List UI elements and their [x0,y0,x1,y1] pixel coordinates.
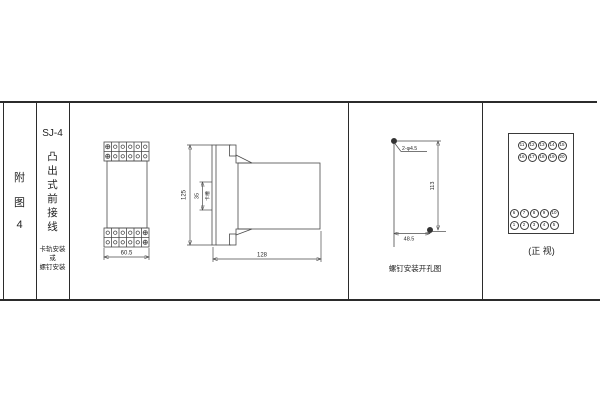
title-char: 接 [47,206,58,220]
terminal-circle: 4 [540,221,549,230]
frame-bottom-line [0,299,600,301]
title-char: 凸 [47,150,58,164]
terminal-view-caption: (正 视) [508,244,575,257]
terminal-circle: 17 [528,153,537,162]
svg-text:60.5: 60.5 [121,251,133,257]
drill-width-dimension: 48.5 [394,234,430,243]
drill-height-dimension: 113 [430,141,438,230]
svg-text:125: 125 [182,189,188,200]
svg-text:2-φ4.5: 2-φ4.5 [402,146,417,152]
mounting-note: 卡轨安装 或 螺钉安装 [36,245,69,272]
terminal-circle: 8 [530,209,539,218]
svg-text:卡槽: 卡槽 [204,191,211,201]
terminal-circle: 1 [510,221,519,230]
hole-size-label: 2-φ4.5 [395,143,428,152]
terminal-circle: 19 [548,153,557,162]
terminal-circle: 16 [518,153,527,162]
figure-index-column: 附 图 4 [3,101,36,299]
terminal-circle: 20 [558,153,567,162]
mounting-note-line: 卡轨安装 [40,245,66,254]
terminal-circle: 11 [518,141,527,150]
rail-slot-dimension: 35 卡槽 [195,182,213,210]
figure-index-char: 附 [14,169,25,185]
front-and-side-view-drawing: 60.5 125 35 卡槽 [69,101,348,299]
mounting-note-line: 螺钉安装 [40,263,66,272]
side-view: 125 35 卡槽 [182,145,322,262]
svg-text:113: 113 [430,182,436,191]
terminal-circle: 18 [538,153,547,162]
terminal-circle: 12 [528,141,537,150]
terminal-circle: 2 [520,221,529,230]
svg-text:128: 128 [257,253,268,259]
figure-index-char: 图 [14,194,25,210]
drill-hole-bottom [427,227,432,232]
terminal-circle: 10 [550,209,559,218]
title-char: 线 [47,220,58,234]
divider-4 [482,101,483,299]
front-view: 60.5 [104,142,149,260]
svg-text:35: 35 [195,193,201,199]
terminal-circle: 15 [558,141,567,150]
figure-index-char: 4 [16,219,22,231]
front-width-dimension: 60.5 [104,248,149,260]
mounting-note-line: 或 [49,254,56,263]
drill-diagram-caption: 螺钉安装开孔图 [348,263,482,274]
title-char: 出 [47,164,58,178]
title-char: 前 [47,192,58,206]
terminal-circle: 3 [530,221,539,230]
terminal-circle: 5 [550,221,559,230]
terminal-circle: 6 [510,209,519,218]
title-vertical-text: 凸 出 式 前 接 线 [36,150,69,234]
svg-text:48.5: 48.5 [404,237,415,243]
title-char: 式 [47,178,58,192]
model-label: SJ-4 [36,128,69,139]
terminal-circle: 13 [538,141,547,150]
drawing-sheet: 附 图 4 SJ-4 凸 出 式 前 接 线 卡轨安装 或 螺钉安装 [0,0,600,400]
terminal-circle: 14 [548,141,557,150]
terminal-circle: 9 [540,209,549,218]
drill-hole-top [391,138,396,143]
terminal-circle: 7 [520,209,529,218]
